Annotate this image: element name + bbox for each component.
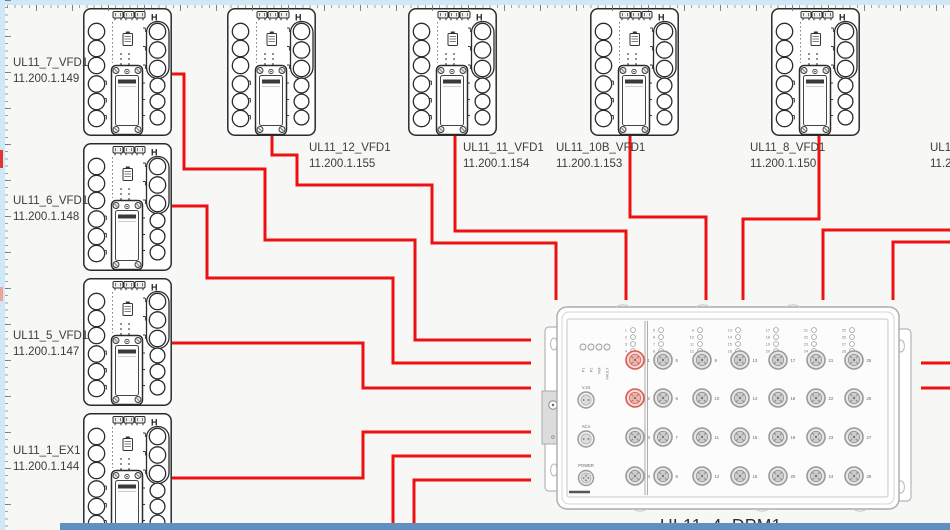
svg-text:9: 9	[692, 329, 694, 333]
svg-text:22: 22	[804, 336, 808, 340]
device-ip: 11.200.1.154	[463, 157, 544, 173]
svg-text:19: 19	[766, 343, 770, 347]
svg-text:20: 20	[766, 350, 770, 354]
diagram-svg: HP1P2RMFAULT1234567891011121314151617181…	[0, 0, 950, 530]
device-ul11-7-vfd1[interactable]	[84, 9, 171, 135]
device-ip: 11.200.1.148	[13, 210, 88, 226]
svg-text:10: 10	[690, 336, 694, 340]
status-led-label: P2	[589, 367, 594, 373]
diagram-scene: HP1P2RMFAULT1234567891011121314151617181…	[0, 0, 950, 530]
dpm-port[interactable]	[807, 467, 825, 485]
dpm-port[interactable]	[693, 428, 711, 446]
status-led-label: P1	[581, 367, 586, 373]
svg-text:20: 20	[791, 474, 796, 479]
device-label-ul11-8-vfd1: UL11_8_VFD1 11.200.1.150	[750, 141, 825, 172]
svg-text:15: 15	[753, 435, 758, 440]
dpm-port[interactable]	[807, 351, 825, 369]
svg-text:17: 17	[791, 358, 796, 363]
dpm-port[interactable]	[626, 389, 644, 407]
device-label-partial-right: UL11 11.2	[930, 141, 950, 172]
device-label-ul11-6-vfd1: UL11_6_VFD1 11.200.1.148	[13, 194, 88, 225]
dpm-port[interactable]	[731, 428, 749, 446]
svg-text:10: 10	[715, 396, 720, 401]
device-name: UL11_12_VFD1	[309, 141, 391, 157]
side-port-label: V.24	[582, 385, 591, 390]
svg-text:16: 16	[753, 474, 758, 479]
svg-text:25: 25	[842, 329, 846, 333]
device-ul11-11-vfd1[interactable]	[409, 9, 496, 135]
dpm-port[interactable]	[654, 467, 672, 485]
side-port-aca[interactable]	[578, 431, 594, 447]
svg-text:11: 11	[690, 343, 694, 347]
dpm-port[interactable]	[769, 351, 787, 369]
svg-text:12: 12	[690, 350, 694, 354]
dpm-port[interactable]	[731, 467, 749, 485]
dpm-port[interactable]	[654, 428, 672, 446]
diagram-canvas: HP1P2RMFAULT1234567891011121314151617181…	[0, 0, 950, 530]
svg-text:23: 23	[804, 343, 808, 347]
device-name: UL11_5_VFD1	[13, 329, 88, 345]
dpm-port[interactable]	[845, 351, 863, 369]
svg-text:27: 27	[842, 343, 846, 347]
ruler-marker-pink	[0, 287, 3, 301]
svg-text:11: 11	[715, 435, 720, 440]
cable-from-right-b[interactable]	[893, 242, 950, 300]
side-port-label: ACA	[582, 424, 591, 429]
svg-text:12: 12	[715, 474, 720, 479]
device-ul11-10b-vfd1[interactable]	[591, 9, 678, 135]
bottom-scrollbar[interactable]	[60, 523, 950, 530]
device-name: UL11_6_VFD1	[13, 194, 88, 210]
dpm-port[interactable]	[769, 389, 787, 407]
device-label-ul11-10b-vfd1: UL11_10B_VFD1 11.200.1.153	[556, 141, 645, 172]
dpm-port[interactable]	[845, 467, 863, 485]
device-ul11-1-ex1[interactable]	[84, 414, 171, 530]
ruler-top-major-ticks	[0, 5, 950, 11]
device-label-ul11-5-vfd1: UL11_5_VFD1 11.200.1.147	[13, 329, 88, 360]
device-dpm[interactable]: P1P2RMFAULT12345678910111213141516171819…	[542, 305, 911, 512]
dpm-port[interactable]	[626, 467, 644, 485]
device-label-ul11-11-vfd1: UL11_11_VFD1 11.200.1.154	[463, 141, 544, 172]
device-ip: 11.200.1.153	[556, 157, 645, 173]
dpm-port[interactable]	[654, 351, 672, 369]
dpm-port[interactable]	[807, 428, 825, 446]
svg-text:3: 3	[625, 343, 627, 347]
svg-text:22: 22	[829, 396, 834, 401]
cable-ul11-5-vfd1[interactable]	[172, 343, 531, 388]
ruler-marker-red	[0, 150, 3, 168]
svg-text:7: 7	[653, 343, 655, 347]
svg-text:24: 24	[829, 474, 834, 479]
device-ip: 11.2	[930, 157, 950, 173]
dpm-port[interactable]	[731, 389, 749, 407]
device-label-ul11-12-vfd1: UL11_12_VFD1 11.200.1.155	[309, 141, 391, 172]
svg-text:6: 6	[653, 336, 655, 340]
svg-text:18: 18	[791, 396, 796, 401]
device-name: UL11	[930, 141, 950, 157]
svg-text:28: 28	[867, 474, 872, 479]
device-name: UL11_11_VFD1	[463, 141, 544, 157]
svg-text:24: 24	[804, 350, 808, 354]
device-ip: 11.200.1.155	[309, 157, 391, 173]
svg-text:14: 14	[753, 396, 758, 401]
device-ul11-8-vfd1[interactable]	[772, 9, 859, 135]
svg-text:2: 2	[625, 336, 627, 340]
device-name: UL11_1_EX1	[13, 444, 81, 460]
status-led-fault	[604, 344, 610, 350]
side-port-label: POWER	[578, 463, 594, 468]
dpm-port[interactable]	[845, 389, 863, 407]
device-ip: 11.200.1.149	[13, 72, 88, 88]
device-ul11-12-vfd1[interactable]	[228, 9, 315, 135]
device-ip: 11.200.1.150	[750, 157, 825, 173]
dpm-port[interactable]	[626, 351, 644, 369]
dpm-port[interactable]	[769, 428, 787, 446]
svg-text:21: 21	[829, 358, 834, 363]
device-ip: 11.200.1.144	[13, 460, 81, 476]
dpm-port[interactable]	[769, 467, 787, 485]
svg-text:19: 19	[791, 435, 796, 440]
dpm-port[interactable]	[845, 428, 863, 446]
svg-text:28: 28	[842, 350, 846, 354]
svg-text:8: 8	[653, 350, 655, 354]
svg-text:18: 18	[766, 336, 770, 340]
dpm-port[interactable]	[654, 389, 672, 407]
svg-text:4: 4	[625, 350, 627, 354]
svg-text:25: 25	[867, 358, 872, 363]
device-ul11-6-vfd1[interactable]	[84, 144, 171, 270]
side-port-v24[interactable]	[578, 392, 594, 408]
ruler-left-major-ticks	[5, 0, 11, 530]
svg-text:26: 26	[867, 396, 872, 401]
device-name: UL11_8_VFD1	[750, 141, 825, 157]
svg-text:27: 27	[867, 435, 872, 440]
dpm-port[interactable]	[693, 467, 711, 485]
dpm-port[interactable]	[693, 351, 711, 369]
svg-text:13: 13	[728, 329, 732, 333]
svg-text:17: 17	[766, 329, 770, 333]
device-label-ul11-1-ex1: UL11_1_EX1 11.200.1.144	[13, 444, 81, 475]
svg-text:21: 21	[804, 329, 808, 333]
svg-text:23: 23	[829, 435, 834, 440]
status-led-p2	[588, 344, 594, 350]
svg-text:1: 1	[625, 329, 627, 333]
device-label-ul11-7-vfd1: UL11_7_VFD1 11.200.1.149	[13, 56, 88, 87]
status-led-label: RM	[597, 368, 602, 374]
svg-text:5: 5	[653, 329, 655, 333]
svg-text:26: 26	[842, 336, 846, 340]
status-led-rm	[596, 344, 602, 350]
device-name: UL11_7_VFD1	[13, 56, 88, 72]
svg-text:14: 14	[728, 336, 732, 340]
status-led-label: FAULT	[605, 367, 610, 380]
dpm-port[interactable]	[731, 351, 749, 369]
svg-text:13: 13	[753, 358, 758, 363]
device-ip: 11.200.1.147	[13, 345, 88, 361]
svg-text:16: 16	[728, 350, 732, 354]
dpm-port[interactable]	[693, 389, 711, 407]
svg-text:15: 15	[728, 343, 732, 347]
dpm-port[interactable]	[626, 428, 644, 446]
status-led-p1	[580, 344, 586, 350]
device-name: UL11_10B_VFD1	[556, 141, 645, 157]
side-port-power[interactable]	[579, 471, 594, 486]
device-ul11-5-vfd1[interactable]	[84, 279, 171, 405]
dpm-port[interactable]	[807, 389, 825, 407]
